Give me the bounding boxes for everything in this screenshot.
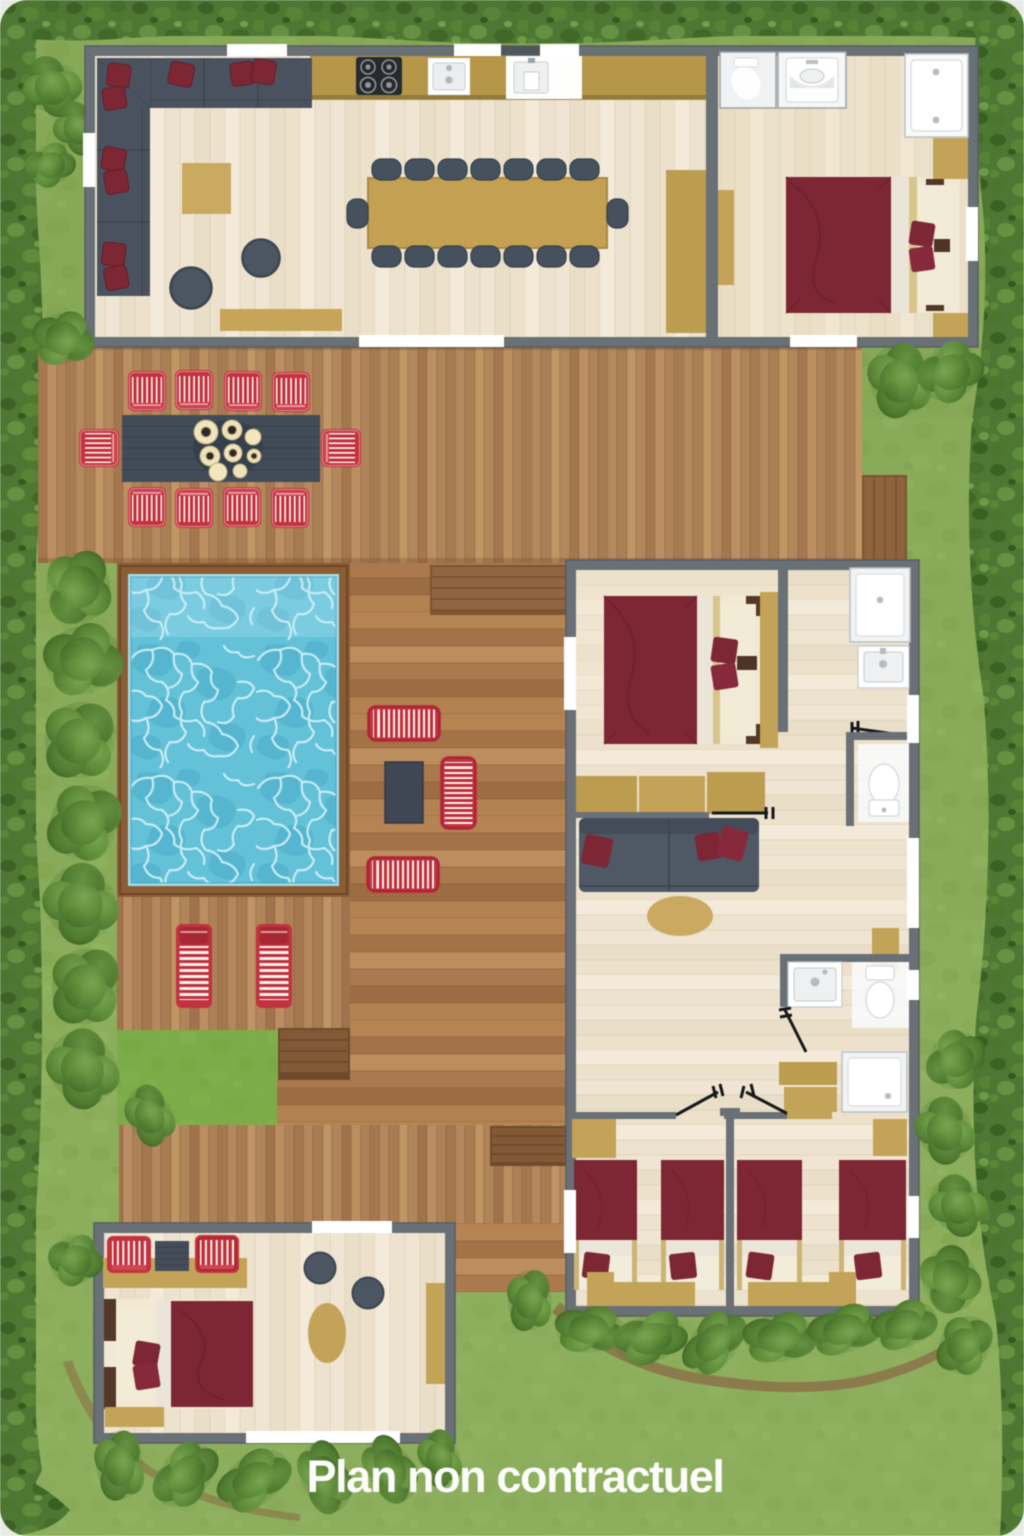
svg-text:Plan non contractuel: Plan non contractuel xyxy=(306,1451,723,1502)
